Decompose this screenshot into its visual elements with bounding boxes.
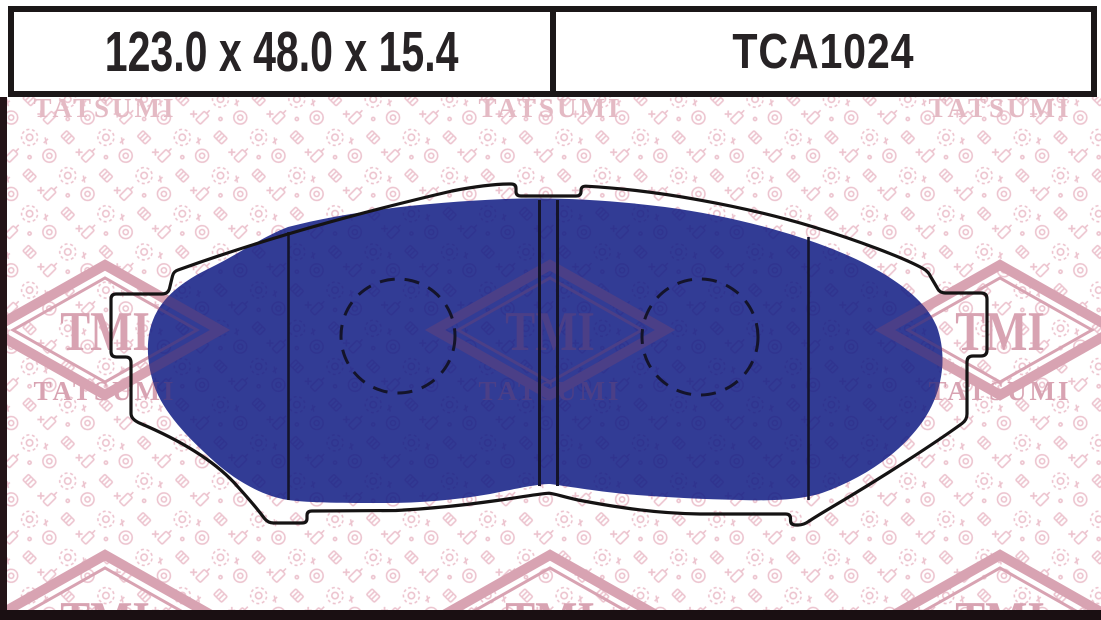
- tatsumi-top-center: TATSUMI: [478, 93, 621, 123]
- photo-edge-left: [0, 97, 7, 620]
- photo-edge-bottom: [0, 610, 1101, 620]
- product-label: 123.0 x 48.0 x 15.4 TCA1024: [0, 0, 1101, 620]
- tatsumi-top-left: TATSUMI: [33, 93, 176, 123]
- tatsumi-top-right: TATSUMI: [928, 93, 1071, 123]
- brake-pad-drawing: TMI TATSUMI TATSUMI TATSUMI TATSUMI: [0, 0, 1101, 620]
